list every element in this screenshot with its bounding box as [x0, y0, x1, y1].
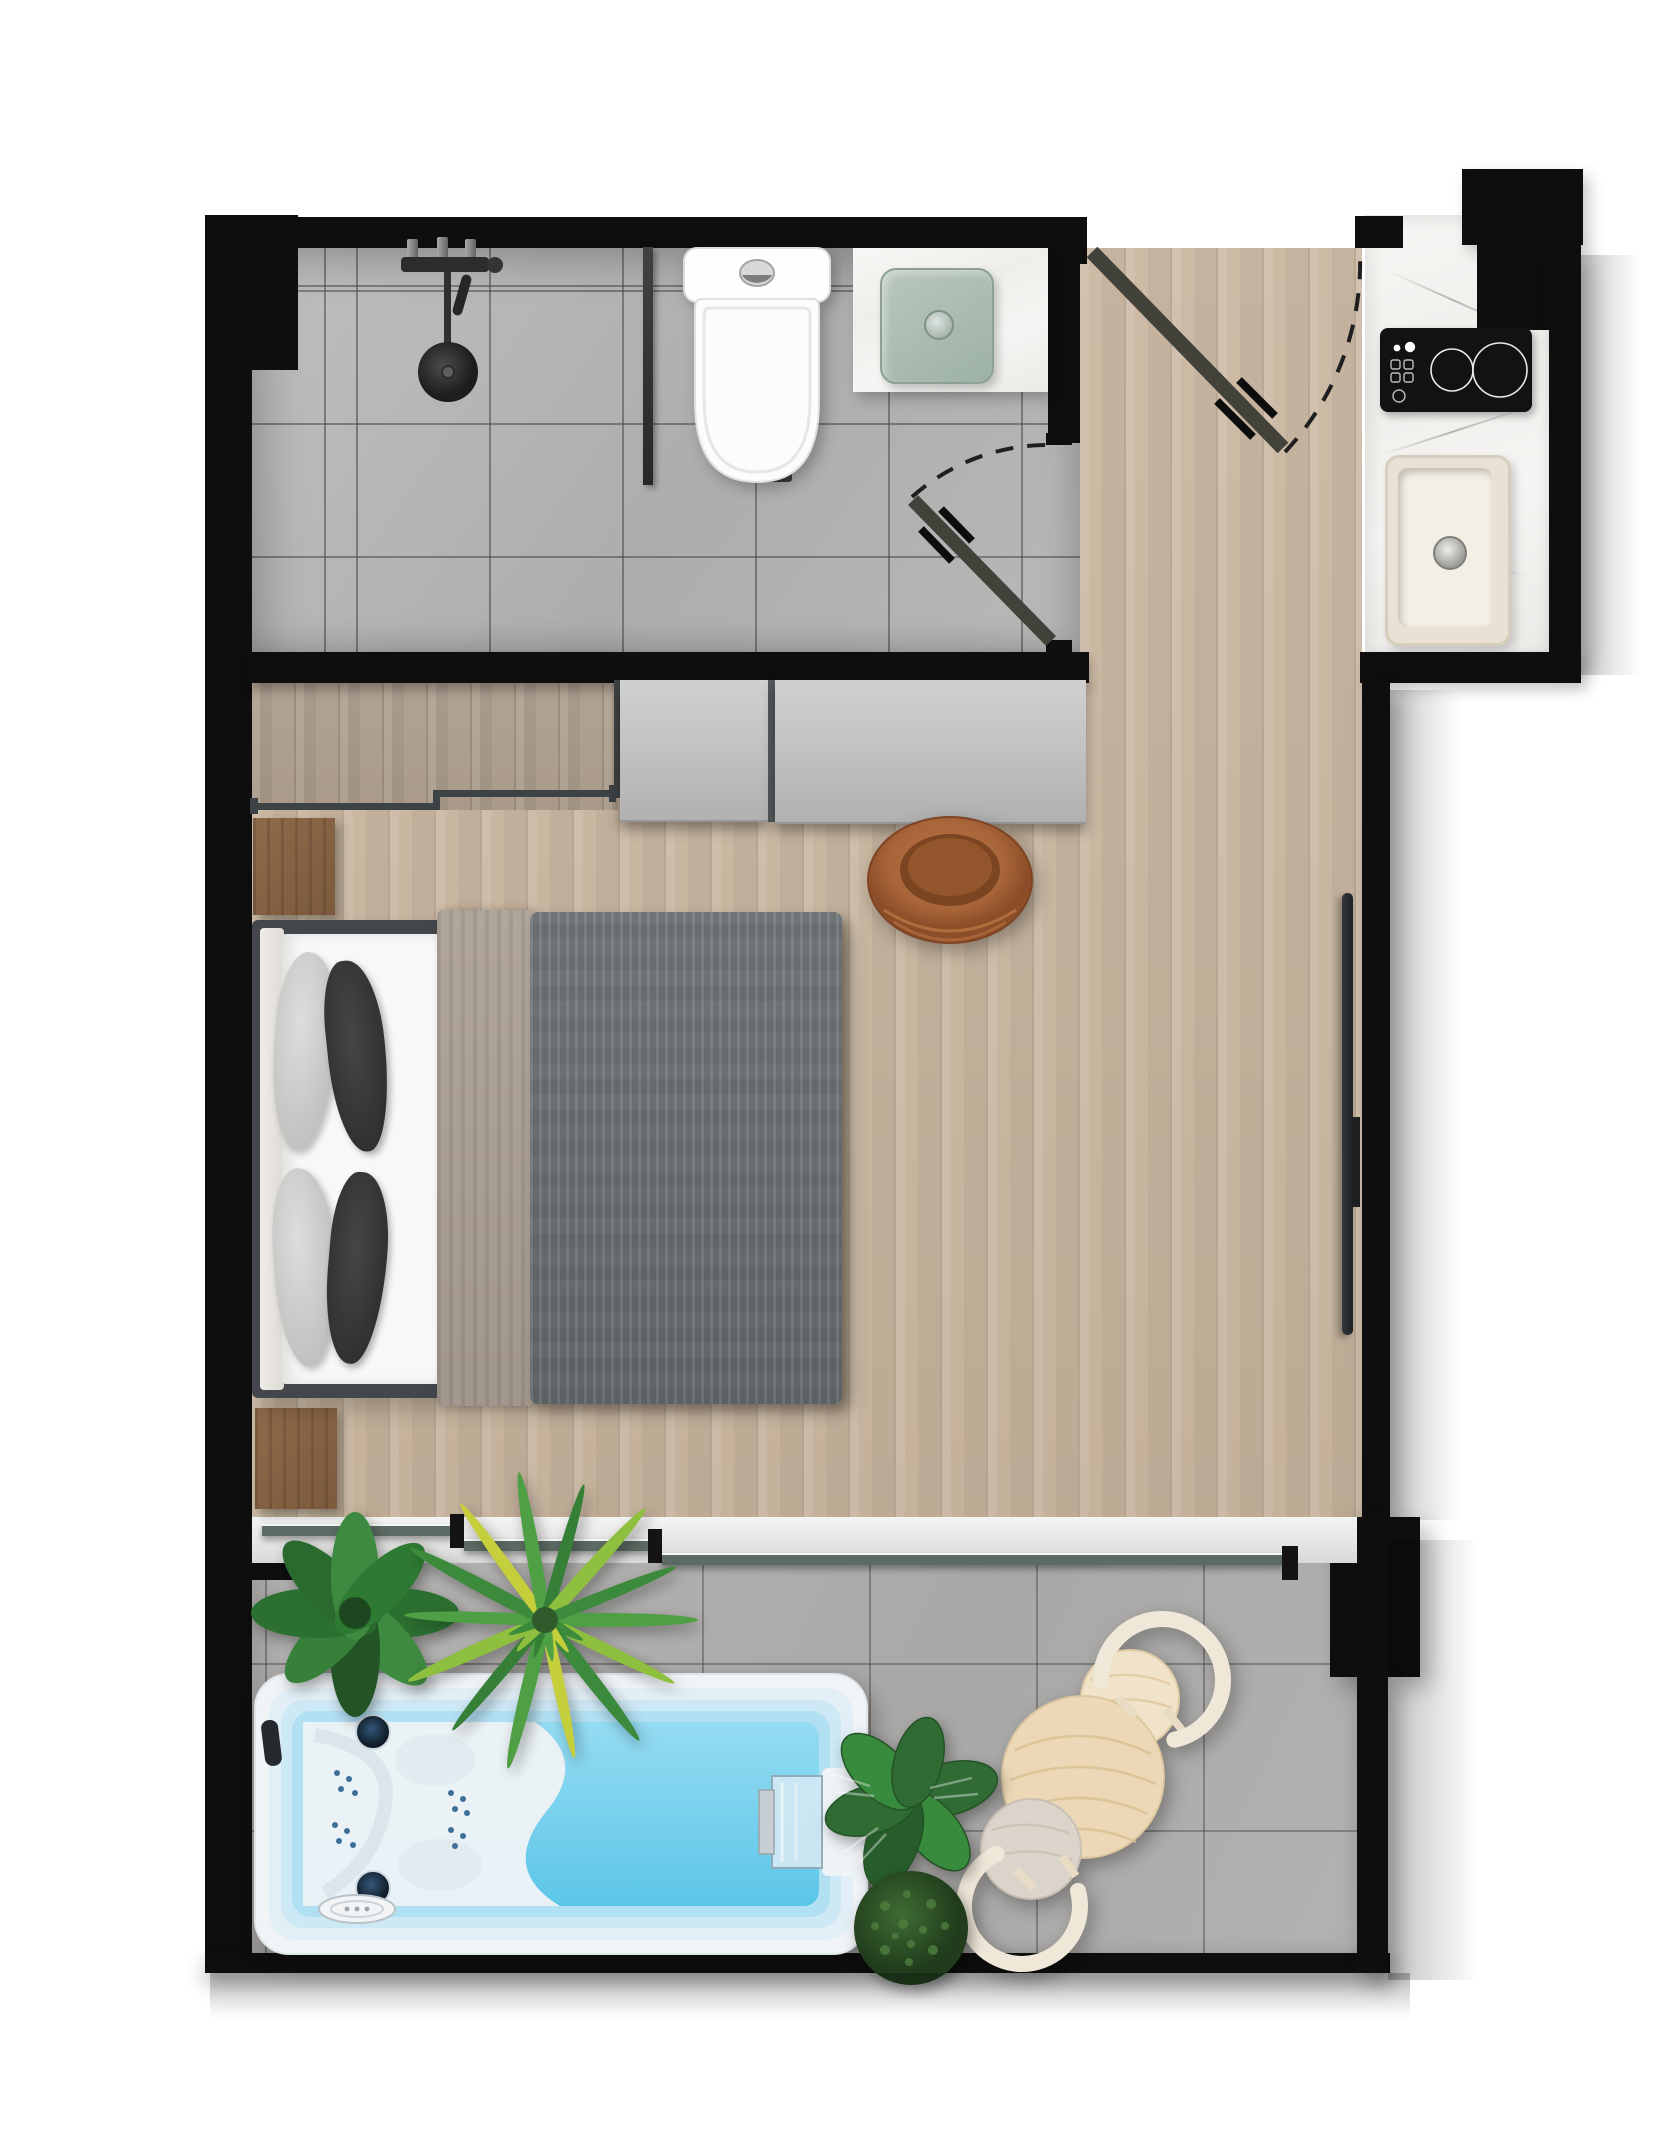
wall-kitchen-bottom — [1360, 652, 1581, 683]
wall-kitchen-right — [1549, 245, 1581, 660]
cooktop-details — [1380, 328, 1532, 412]
shower — [395, 230, 525, 415]
sliding-door-panel — [662, 1553, 1284, 1565]
door-swing-arc — [1285, 254, 1360, 452]
plant-palm — [415, 1490, 675, 1750]
closet-rail-line — [253, 803, 438, 810]
toilet — [680, 242, 840, 492]
double-bed — [252, 920, 840, 1398]
wall-left — [205, 215, 252, 1517]
nightstand — [253, 818, 335, 915]
toilet-flush-button — [740, 260, 774, 286]
basin-drain — [924, 310, 954, 340]
shower-head — [418, 342, 478, 402]
control-keys — [1391, 360, 1413, 402]
closet-rail-line — [438, 790, 615, 797]
wardrobe-panel — [620, 680, 768, 822]
tv — [1342, 893, 1353, 1335]
exterior-shadow — [1390, 690, 1460, 1520]
door-leaf — [913, 500, 1051, 641]
wall-top — [205, 217, 1087, 248]
entry-door — [1050, 230, 1390, 480]
wardrobe-panel — [775, 680, 1086, 824]
duvet — [530, 912, 842, 1404]
shower-glass-screen — [643, 247, 653, 485]
wall-kitchen-column — [1477, 245, 1549, 330]
kitchen-sink — [1385, 455, 1511, 646]
indicator-dot — [1405, 342, 1415, 352]
sliding-door-cap — [1282, 1546, 1298, 1580]
wardrobe-panel-divider — [768, 680, 775, 822]
door-swing-arc — [912, 445, 1051, 497]
throw-blanket — [437, 910, 533, 1406]
door-leaf — [1092, 252, 1283, 448]
kitchen-sink-drain — [1433, 536, 1467, 570]
nightstand — [255, 1408, 337, 1509]
vanity-basin — [880, 268, 994, 384]
plant-shrub — [845, 1862, 980, 1997]
fronds — [404, 1471, 698, 1770]
toilet-bowl — [695, 299, 819, 482]
spa-control-panel — [319, 1895, 395, 1923]
shower-valve-bar — [401, 237, 503, 317]
wall-balcony-right — [1357, 1677, 1388, 1973]
indicator-dot — [1394, 345, 1401, 352]
exterior-shadow — [1581, 255, 1641, 675]
burner-large — [1473, 343, 1527, 397]
floor-plan — [0, 0, 1655, 2155]
lounge-chair — [858, 810, 1043, 955]
burner-small — [1431, 349, 1473, 391]
wall-corner-top-right — [1462, 169, 1583, 245]
wall-living-right — [1362, 683, 1390, 1517]
tv-mount — [1352, 1117, 1360, 1207]
